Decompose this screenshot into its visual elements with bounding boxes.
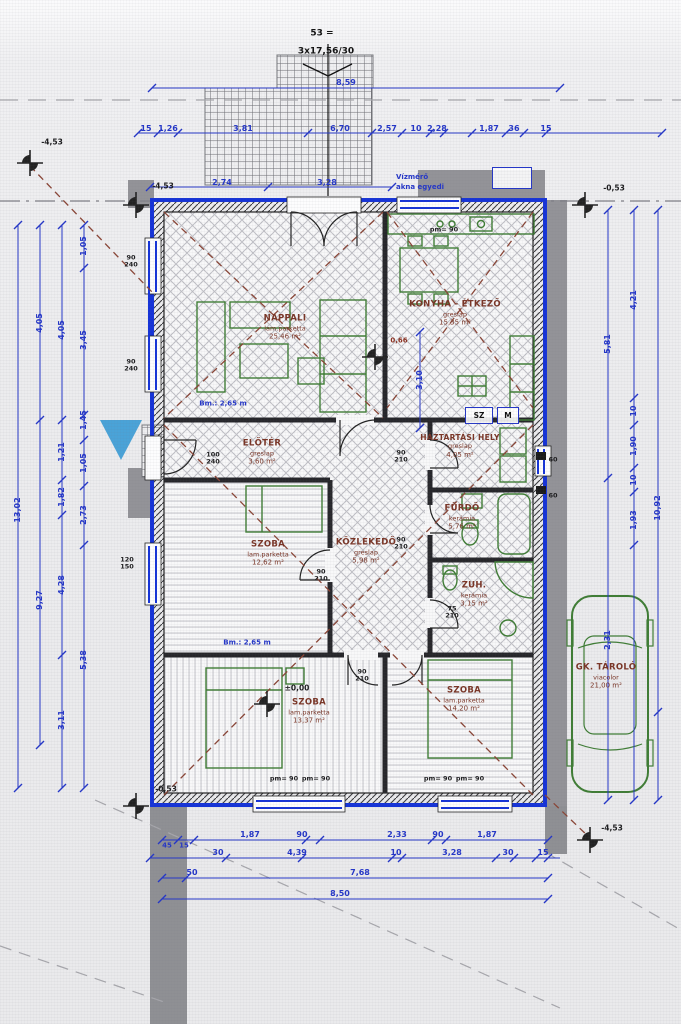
dim-label: 5,38 xyxy=(80,650,88,670)
parapet-label: pm= 90 xyxy=(424,775,452,782)
dim-label: 90 xyxy=(432,831,443,839)
dim-label: 50 xyxy=(186,869,197,877)
water-meter-box xyxy=(492,167,532,189)
dim-label: 8,59 xyxy=(336,79,356,87)
room-finish: lam.parketta xyxy=(247,550,289,558)
room-area: 21,00 m² xyxy=(576,681,637,690)
room-name: NAPPALI xyxy=(264,313,307,324)
dim-label: 2,73 xyxy=(80,505,88,525)
room-name: SZOBA xyxy=(443,685,485,696)
dim-label: 4,21 xyxy=(630,290,638,310)
dim-label: 1,93 xyxy=(630,510,638,530)
dim-label: 2,33 xyxy=(387,831,407,839)
window-sill: 240 xyxy=(124,366,138,373)
dryer-label: SZ xyxy=(474,411,485,420)
level-label: -4,53 xyxy=(601,824,623,832)
room-name: HÁZTARTÁSI HELY xyxy=(420,433,499,442)
room-finish: kerámia xyxy=(444,514,479,522)
window-sill: 150 xyxy=(120,564,134,571)
dim-label: 15 xyxy=(540,125,551,133)
room-label-szoba-mid: SZOBA lam.parketta 12,62 m² xyxy=(247,539,289,567)
dim-label: 10 xyxy=(410,125,421,133)
dim-label: 3,28 xyxy=(317,179,337,187)
level-label: ±0,00 xyxy=(285,684,310,692)
level-label: -4,53 xyxy=(41,138,63,146)
room-name: ZUH. xyxy=(460,580,487,591)
parapet-label: pm= 90 xyxy=(430,226,458,233)
room-name: FÜRDŐ xyxy=(444,503,479,514)
room-finish: viacolor xyxy=(576,673,637,681)
dim-label: 36 xyxy=(508,125,519,133)
door-height: 210 xyxy=(314,576,328,583)
ceiling-height-note: Bm.: 2,65 m xyxy=(199,401,247,408)
dim-label: 1,90 xyxy=(630,436,638,456)
room-label-zuhanyzo: ZUH. kerámia 3,15 m² xyxy=(460,580,487,608)
door-size-label: 100 240 xyxy=(206,452,220,467)
room-finish: kerámia xyxy=(460,591,487,599)
level-label: -0,53 xyxy=(155,785,177,793)
room-label-szoba-bl: SZOBA lam.parketta 13,37 m² xyxy=(288,697,330,725)
dim-label: 3,81 xyxy=(233,125,253,133)
dim-label: 15 xyxy=(537,849,548,857)
dim-label: 13,02 xyxy=(14,497,22,522)
room-finish: greslap xyxy=(409,310,501,318)
room-area: 5,98 m² xyxy=(336,556,396,565)
dim-label: 4,05 xyxy=(36,313,44,333)
dim-label: 3,28 xyxy=(442,849,462,857)
dim-label: 9,27 xyxy=(36,590,44,610)
room-finish: lam.parketta xyxy=(443,696,485,704)
dim-label: 2,74 xyxy=(212,179,232,187)
parapet-label: pm= 90 xyxy=(302,775,330,782)
dim-label: 7,68 xyxy=(350,869,370,877)
dim-label: 15 xyxy=(179,843,189,850)
level-label: -4,53 xyxy=(152,182,174,190)
dim-label: 10 xyxy=(630,474,638,485)
dim-label: 1,45 xyxy=(80,410,88,430)
room-area: 3,15 m² xyxy=(460,599,487,608)
car xyxy=(567,596,653,792)
dim-label: 10,92 xyxy=(654,495,662,520)
window-size-label: 120 150 xyxy=(120,557,134,572)
door-height: 210 xyxy=(355,676,369,683)
dim-label: 1,87 xyxy=(479,125,499,133)
room-area: 4,05 m² xyxy=(420,450,499,459)
dim-label: 1,21 xyxy=(58,442,66,462)
dim-label: 1,05 xyxy=(80,236,88,256)
dryer-box: SZ xyxy=(465,407,493,424)
room-area: 3,60 m² xyxy=(243,457,281,466)
room-finish: lam.parketta xyxy=(264,324,307,332)
dim-label: 3,10 xyxy=(416,370,424,390)
dim-label: 4,39 xyxy=(287,849,307,857)
dim-label: 6,70 xyxy=(330,125,350,133)
dim-label: 1,82 xyxy=(58,487,66,507)
dim-label: 30 xyxy=(502,849,513,857)
door-height: 240 xyxy=(206,459,220,466)
dim-label: 30 xyxy=(212,849,223,857)
washer-label: M xyxy=(504,411,511,420)
room-finish: greslap xyxy=(336,548,396,556)
dim-label: 1,05 xyxy=(80,453,88,473)
room-name: KÖZLEKEDŐ xyxy=(336,537,396,548)
dim-label: 1,87 xyxy=(477,831,497,839)
door-size-label: 90 210 xyxy=(355,669,369,684)
window-size-label: 90 240 xyxy=(124,255,138,270)
parapet-label: pm= 90 xyxy=(270,775,298,782)
door-height: 210 xyxy=(445,613,459,620)
entrance-triangle-marker xyxy=(100,420,142,460)
parapet-label: pm= 90 xyxy=(456,775,484,782)
room-area: 25,46 m² xyxy=(264,332,307,341)
stair-note-label: 3x17,56/30 xyxy=(298,48,354,57)
door-height: 210 xyxy=(394,544,408,551)
door-size-label: 90 210 xyxy=(394,450,408,465)
dim-label: 5,81 xyxy=(604,334,612,354)
room-name: ELŐTÉR xyxy=(243,438,281,449)
room-label-nappali: NAPPALI lam.parketta 25,46 m² xyxy=(264,313,307,341)
floorplan-canvas: 53 = 3x17,56/30 15 1,26 3,81 6,70 2,57 1… xyxy=(0,0,681,1024)
room-area: 14,20 m² xyxy=(443,704,485,713)
room-name: SZOBA xyxy=(288,697,330,708)
window-sill: 240 xyxy=(124,262,138,269)
door-size-label: 90 210 xyxy=(314,569,328,584)
room-name: SZOBA xyxy=(247,539,289,550)
room-name: KONYHA - ÉTKEZŐ xyxy=(409,299,501,310)
dim-label: 2,31 xyxy=(604,630,612,650)
stair-count-label: 53 = xyxy=(310,30,333,39)
room-name: GK. TÁROLÓ xyxy=(576,662,637,673)
vent-size-label: 60 xyxy=(548,456,557,463)
room-area: 13,37 m² xyxy=(288,716,330,725)
door-height: 210 xyxy=(394,457,408,464)
washer-box: M xyxy=(497,407,519,424)
dim-label: 90 xyxy=(296,831,307,839)
dim-label: 4,28 xyxy=(58,575,66,595)
room-label-szoba-br: SZOBA lam.parketta 14,20 m² xyxy=(443,685,485,713)
room-label-kozlekedo: KÖZLEKEDŐ greslap 5,98 m² xyxy=(336,537,396,565)
room-label-konyha: KONYHA - ÉTKEZŐ greslap 15,35 m² xyxy=(409,299,501,327)
dim-label: 15 xyxy=(140,125,151,133)
dim-label: 1,87 xyxy=(240,831,260,839)
dim-label: 45 xyxy=(162,843,172,850)
level-label: -0,53 xyxy=(603,184,625,192)
water-meter-note: Vízmérő xyxy=(396,174,428,181)
floorplan-drawing xyxy=(0,0,681,1024)
dim-label: 10 xyxy=(630,405,638,416)
room-label-carport: GK. TÁROLÓ viacolor 21,00 m² xyxy=(576,662,637,690)
room-finish: lam.parketta xyxy=(288,708,330,716)
room-label-furdo: FÜRDŐ kerámia 5,76 m² xyxy=(444,503,479,531)
room-finish: greslap xyxy=(243,449,281,457)
dim-label: 1,26 xyxy=(158,125,178,133)
dim-label: 3,11 xyxy=(58,710,66,730)
door-size-label: 90 210 xyxy=(394,537,408,552)
dim-label: 2,57 xyxy=(377,125,397,133)
room-area: 12,62 m² xyxy=(247,558,289,567)
room-area: 5,76 m² xyxy=(444,522,479,531)
dim-label: 3,45 xyxy=(80,330,88,350)
room-area: 15,35 m² xyxy=(409,318,501,327)
vent-size-label: 60 xyxy=(548,492,557,499)
door-size-label: 75 210 xyxy=(445,606,459,621)
dim-label: 4,05 xyxy=(58,320,66,340)
room-label-haztartasi: HÁZTARTÁSI HELY greslap 4,05 m² xyxy=(420,433,499,459)
window-size-label: 90 240 xyxy=(124,359,138,374)
water-meter-note: akna egyedi xyxy=(396,184,444,191)
room-label-eloter: ELŐTÉR greslap 3,60 m² xyxy=(243,438,281,466)
ceiling-height-note: Bm.: 2,65 m xyxy=(223,640,271,647)
dim-label: 10 xyxy=(390,849,401,857)
dim-label: 8,50 xyxy=(330,890,350,898)
dim-label: 2,28 xyxy=(427,125,447,133)
level-offset-label: 0,66 xyxy=(390,338,407,345)
room-finish: greslap xyxy=(420,442,499,450)
